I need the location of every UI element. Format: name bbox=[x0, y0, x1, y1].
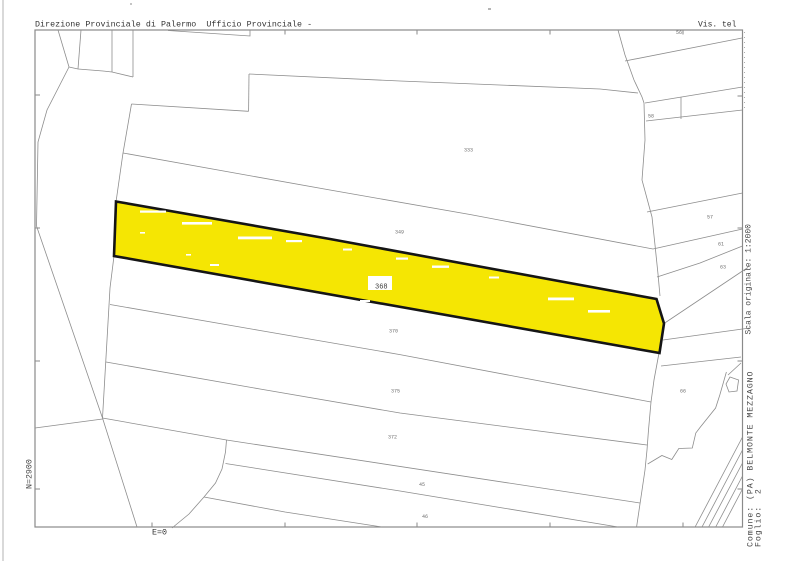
svg-text:61: 61 bbox=[718, 242, 724, 248]
svg-text:Scala originale: 1:2000: Scala originale: 1:2000 bbox=[745, 224, 754, 335]
svg-text:333: 333 bbox=[464, 148, 473, 154]
svg-text:56: 56 bbox=[676, 30, 682, 36]
svg-text:46: 46 bbox=[422, 514, 428, 520]
svg-text:375: 375 bbox=[391, 389, 400, 395]
svg-text:349: 349 bbox=[395, 230, 404, 236]
svg-text:57: 57 bbox=[707, 215, 713, 221]
svg-text:Vis. tel: Vis. tel bbox=[698, 21, 737, 30]
svg-text:Direzione Provinciale di Paler: Direzione Provinciale di Palermo Ufficio… bbox=[35, 20, 312, 30]
svg-text:372: 372 bbox=[388, 435, 397, 441]
svg-text:N=2900: N=2900 bbox=[26, 459, 35, 489]
svg-text:58: 58 bbox=[648, 114, 654, 120]
svg-text:66: 66 bbox=[680, 389, 686, 395]
svg-text:63: 63 bbox=[720, 265, 726, 271]
svg-text:370: 370 bbox=[389, 329, 398, 335]
svg-text:368: 368 bbox=[375, 284, 388, 292]
svg-text:Foglio: 2: Foglio: 2 bbox=[754, 488, 764, 547]
svg-text:45: 45 bbox=[419, 482, 425, 488]
svg-text:E=0: E=0 bbox=[152, 529, 167, 538]
